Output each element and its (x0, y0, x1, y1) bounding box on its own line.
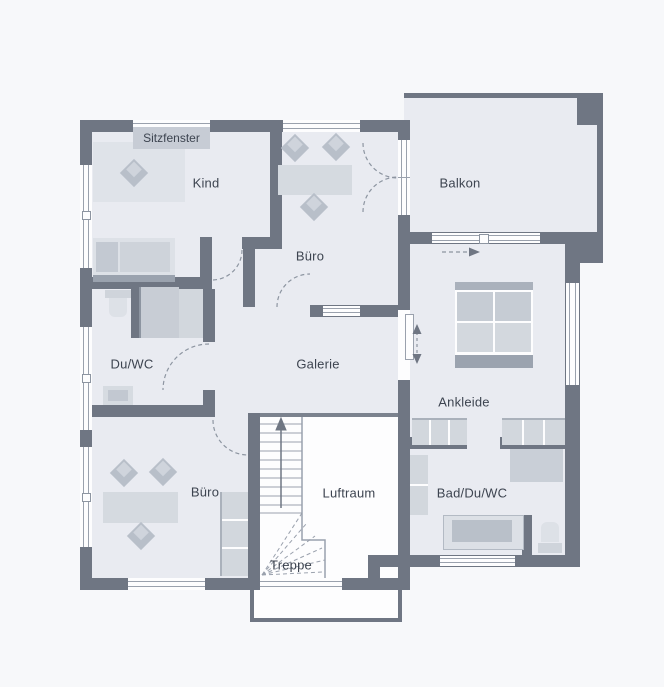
plan-symbols-overlay (0, 0, 664, 687)
room-label-luftraum: Luftraum (323, 486, 376, 501)
kind-door-arc (212, 250, 242, 280)
stair-up-arrow (276, 418, 286, 508)
room-label-buero-bottom: Büro (191, 485, 219, 500)
ankleide-slide-arrow (413, 324, 422, 364)
room-label-balkon: Balkon (440, 176, 481, 191)
room-label-ankleide: Ankleide (438, 395, 489, 410)
buero-bottom-door-arc (213, 420, 248, 455)
room-label-badduwc: Bad/Du/WC (437, 486, 507, 501)
french-door-arc-bottom (363, 177, 398, 212)
room-label-buero-top: Büro (296, 249, 324, 264)
room-label-duwc: Du/WC (111, 357, 154, 372)
sitzfenster-label: Sitzfenster (143, 131, 200, 145)
room-label-galerie: Galerie (296, 357, 339, 372)
duwc-door-arc (163, 344, 209, 390)
french-door-arc-top (363, 143, 398, 178)
room-label-kind: Kind (193, 176, 220, 191)
sitzfenster-label-box: Sitzfenster (133, 127, 210, 149)
buero-top-door-arc (277, 274, 310, 307)
balcony-slide-arrow (442, 248, 480, 257)
stair-outline (302, 417, 325, 578)
room-label-treppe: Treppe (270, 558, 312, 573)
floor-plan: Sitzfenster Kind Büro Balkon Du/WC Galer… (0, 0, 664, 687)
